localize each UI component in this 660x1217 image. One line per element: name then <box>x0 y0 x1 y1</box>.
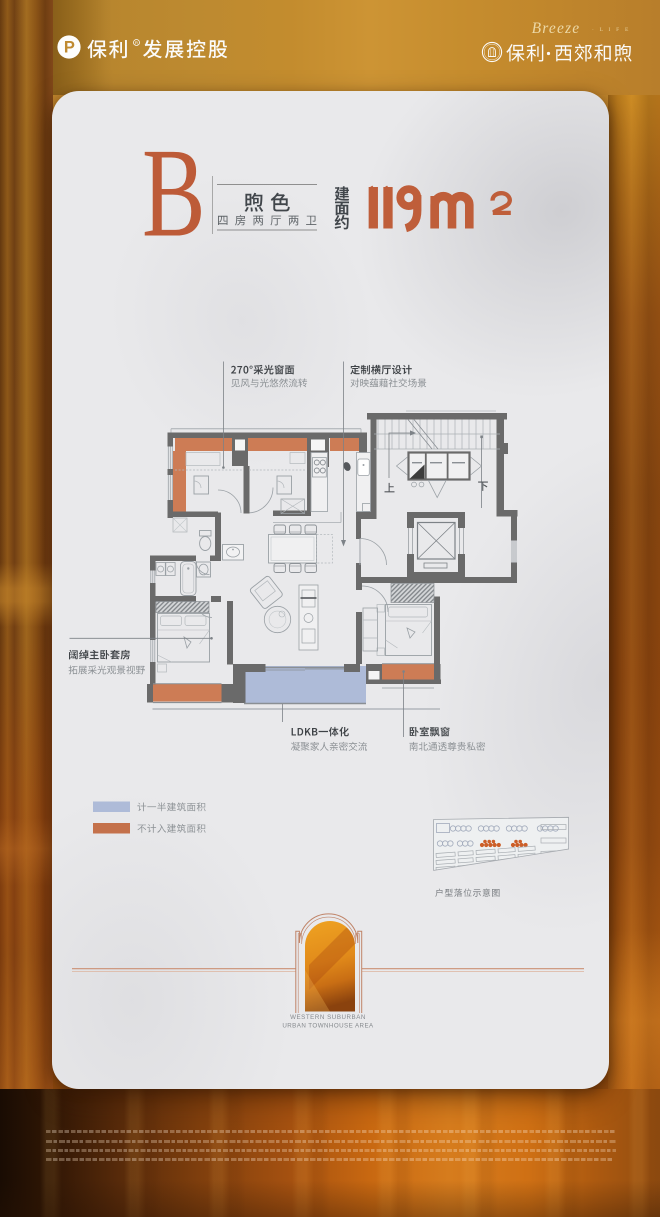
svg-text:WESTERN SUBURBAN: WESTERN SUBURBAN <box>290 1014 366 1021</box>
svg-text:Breeze: Breeze <box>532 20 581 37</box>
svg-text:B: B <box>142 123 206 263</box>
svg-text:P: P <box>64 39 75 57</box>
svg-text:R: R <box>135 41 138 46</box>
svg-text:· L I F E: · L I F E <box>592 27 631 33</box>
svg-text:URBAN TOWNHOUSE AREA: URBAN TOWNHOUSE AREA <box>282 1022 374 1029</box>
